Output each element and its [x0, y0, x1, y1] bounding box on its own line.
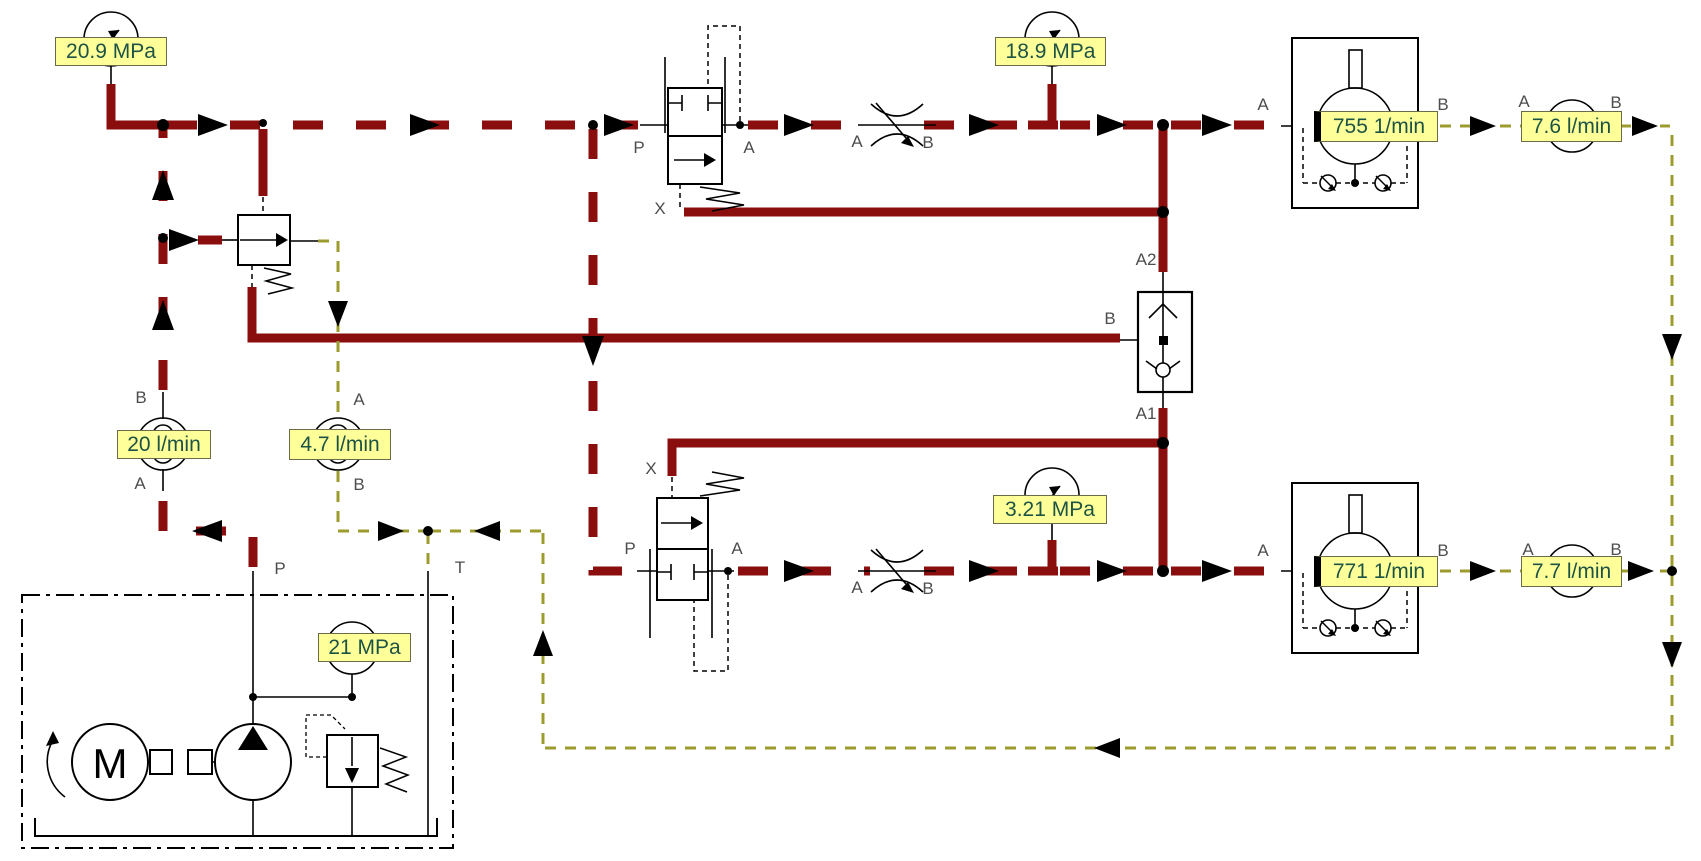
top-motor-port-b: B — [1437, 95, 1448, 115]
top-valve-port-p: P — [633, 138, 644, 158]
bottom-valve-port-x: X — [645, 459, 656, 479]
bottom-motor-pressure-value[interactable]: 3.21 MPa — [993, 495, 1107, 524]
top-throttle-port-a: A — [851, 132, 862, 152]
power-unit-port-p: P — [274, 559, 285, 579]
shuttle-port-a1: A1 — [1136, 404, 1157, 424]
circuit-diagram — [0, 0, 1701, 861]
top-motor-port-a: A — [1257, 95, 1268, 115]
top-motor-pressure-value[interactable]: 18.9 MPa — [995, 37, 1106, 66]
electric-motor-letter: M — [93, 740, 128, 788]
bottom-throttle-port-b: B — [922, 579, 933, 599]
pump-line-pressure-value[interactable]: 20.9 MPa — [55, 37, 167, 66]
bottom-motor-drain-flow-value[interactable]: 7.7 l/min — [1521, 556, 1622, 587]
bottom-motor-speed-value[interactable]: 771 1/min — [1314, 556, 1438, 587]
drain-meter-port-b: B — [353, 475, 364, 495]
top-motor-speed-value[interactable]: 755 1/min — [1314, 111, 1438, 142]
drain-lines — [318, 126, 1672, 748]
hydraulic-circuit-canvas: 20.9 MPa 18.9 MPa 3.21 MPa 21 MPa 20 l/m… — [0, 0, 1701, 861]
pump-meter-port-a: A — [134, 474, 145, 494]
pressure-reducing-valve[interactable] — [238, 197, 292, 294]
shuttle-port-b: B — [1104, 309, 1115, 329]
bottom-drain-meter-port-b: B — [1610, 540, 1621, 560]
shuttle-valve[interactable] — [1138, 292, 1192, 392]
power-unit-pressure-value[interactable]: 21 MPa — [318, 633, 411, 662]
top-motor-drain-flow-value[interactable]: 7.6 l/min — [1521, 111, 1622, 142]
shuttle-port-a2: A2 — [1136, 250, 1157, 270]
pressure-lines-flow — [163, 125, 1279, 571]
reducer-drain-flow-value[interactable]: 4.7 l/min — [289, 429, 391, 460]
pump-meter-port-b: B — [135, 388, 146, 408]
bottom-drain-meter-port-a: A — [1522, 540, 1533, 560]
drain-meter-port-a: A — [353, 390, 364, 410]
top-drain-meter-port-a: A — [1518, 92, 1529, 112]
pump-flow-value[interactable]: 20 l/min — [117, 430, 211, 459]
top-valve-port-x: X — [654, 199, 665, 219]
bottom-motor-port-b: B — [1437, 541, 1448, 561]
bottom-valve-port-a: A — [731, 539, 742, 559]
top-throttle-port-b: B — [922, 133, 933, 153]
top-valve-port-a: A — [743, 138, 754, 158]
bottom-motor-port-a: A — [1257, 541, 1268, 561]
bottom-throttle-port-a: A — [851, 578, 862, 598]
power-unit-port-t: T — [455, 558, 465, 578]
bottom-valve-port-p: P — [624, 539, 635, 559]
junction-dots — [157, 119, 1677, 701]
top-drain-meter-port-b: B — [1610, 93, 1621, 113]
top-pilot-valve[interactable] — [665, 26, 744, 211]
